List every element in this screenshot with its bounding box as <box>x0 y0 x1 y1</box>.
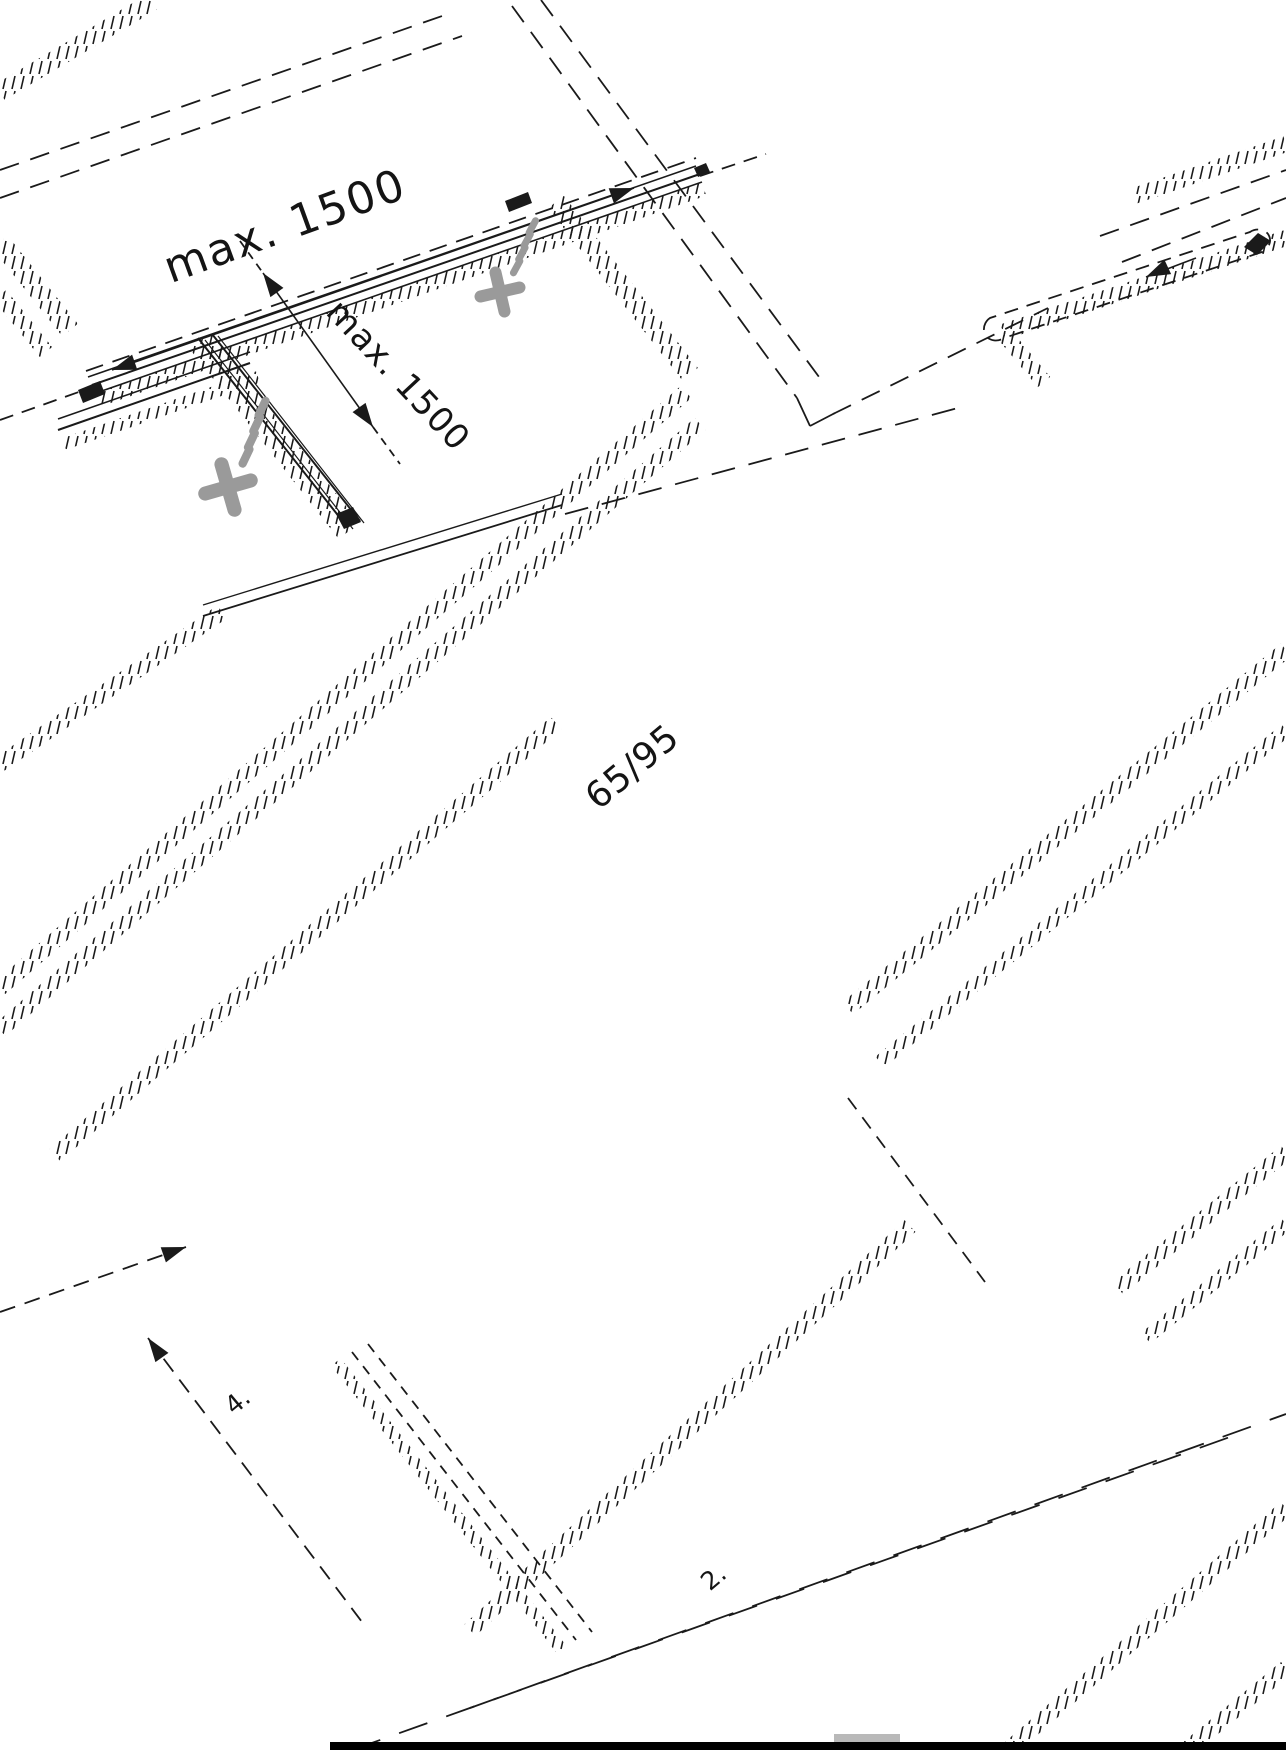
arrowhead-icon <box>353 403 373 427</box>
page-edge-strip <box>834 1734 900 1743</box>
dashed-outline-line <box>373 427 400 464</box>
dashed-outline-line <box>0 1247 186 1312</box>
arrowhead-icon <box>148 1338 168 1362</box>
hatch-edge-band <box>0 0 157 100</box>
drawing-line <box>198 338 348 528</box>
dimension-label-center: 65/95 <box>578 717 688 818</box>
dimension-label-top: max. 1500 <box>157 159 413 294</box>
rail-fitting <box>505 192 532 212</box>
dashed-outline-line <box>541 0 822 381</box>
drawing-line <box>797 398 810 426</box>
dashed-outline-line <box>833 308 1048 414</box>
page-edge-bar <box>330 1742 1286 1750</box>
hatch-edge-band <box>50 717 561 1161</box>
dashed-outline-line <box>0 15 445 170</box>
dashed-outline-line <box>368 1344 592 1632</box>
hatch-edge-band <box>1000 230 1286 339</box>
arrowhead-icon <box>161 1247 186 1262</box>
assembly-diagram: max. 1500 max. 1500 65/95 4. 2. <box>0 0 1286 1750</box>
dashed-outline-line <box>0 388 90 420</box>
hatch-edge-band <box>1181 1662 1286 1750</box>
hatch-edge-band <box>0 605 227 770</box>
hatch-edge-band <box>843 644 1286 1014</box>
drawing-line <box>810 413 835 426</box>
hatch-edge-band <box>1142 1219 1286 1344</box>
step-label-bottom: 2. <box>695 1559 732 1597</box>
hatch-edge-band <box>876 725 1286 1068</box>
hatch-edge-band <box>1131 136 1286 203</box>
dimension-label-side: max. 1500 <box>318 292 478 459</box>
dashed-outline-line <box>148 1338 362 1622</box>
arrowhead-icon <box>263 273 283 297</box>
dashed-outline-line <box>565 408 958 514</box>
dashed-outline-line <box>352 1352 576 1640</box>
hatch-edge-band <box>1113 1146 1286 1294</box>
hatch-edge-band <box>998 329 1050 387</box>
dashed-outline-line <box>700 154 766 176</box>
scanned-manual-page: max. 1500 max. 1500 65/95 4. 2. <box>0 0 1286 1750</box>
hatch-edge-band <box>331 1358 566 1653</box>
step-label-left: 4. <box>219 1383 256 1421</box>
drawing-line <box>218 336 364 523</box>
